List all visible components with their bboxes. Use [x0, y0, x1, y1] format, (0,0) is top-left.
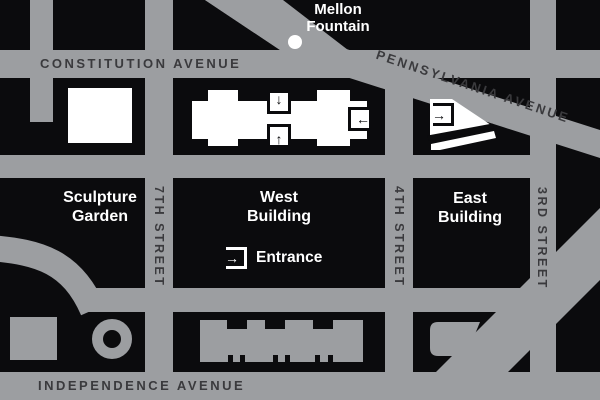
east-building-entrance-icon: →: [433, 103, 454, 126]
west-building-label-line1: West: [219, 188, 339, 207]
nga-area-map: ↓ ↑ ← → → CONSTITUTION AVENUE PENNSYLVAN…: [0, 0, 600, 400]
mellon-fountain-dot: [288, 35, 302, 49]
constitution-avenue-label: CONSTITUTION AVENUE: [40, 56, 241, 71]
west-building-left-pavilion: [208, 90, 238, 146]
sw-square-building: [10, 317, 57, 360]
block-top-far-left: [0, 0, 30, 50]
entrance-label: Entrance: [256, 249, 322, 267]
right-arrow-icon: →: [432, 108, 446, 122]
west-building-right-pavilion: [317, 90, 350, 146]
west-east-entrance-icon: ←: [348, 107, 369, 131]
mellon-fountain-label-line1: Mellon: [293, 2, 383, 19]
west-north-entrance-icon: ↓: [267, 93, 291, 114]
main-entrance-icon: →: [226, 247, 247, 269]
east-building-label-line2: Building: [410, 208, 530, 227]
mellon-fountain-label: Mellon Fountain: [293, 2, 383, 35]
west-building-label: West Building: [219, 188, 339, 226]
left-arrow-icon: ←: [356, 112, 370, 126]
block-top-right: [556, 0, 600, 50]
up-arrow-icon: ↑: [276, 132, 283, 146]
block-top-left: [53, 0, 145, 50]
mellon-fountain-label-line2: Fountain: [293, 19, 383, 36]
third-street-label: 3RD STREET: [535, 187, 549, 290]
independence-avenue-label: INDEPENDENCE AVENUE: [38, 378, 245, 393]
madison-drive-road: [0, 155, 556, 178]
fourth-street-label: 4TH STREET: [392, 186, 406, 287]
east-building-label-line1: East: [410, 189, 530, 208]
sculpture-garden-label-line2: Garden: [40, 207, 160, 226]
nw-pavilion-building: [68, 88, 132, 143]
sculpture-garden-label-line1: Sculpture: [40, 188, 160, 207]
jefferson-drive-road: [85, 288, 556, 312]
west-building-label-line2: Building: [219, 207, 339, 226]
right-arrow-icon: →: [225, 251, 239, 265]
sculpture-garden-label: Sculpture Garden: [40, 188, 160, 226]
west-south-entrance-icon: ↑: [267, 124, 291, 145]
east-building-label: East Building: [410, 189, 530, 227]
down-arrow-icon: ↓: [276, 92, 283, 106]
